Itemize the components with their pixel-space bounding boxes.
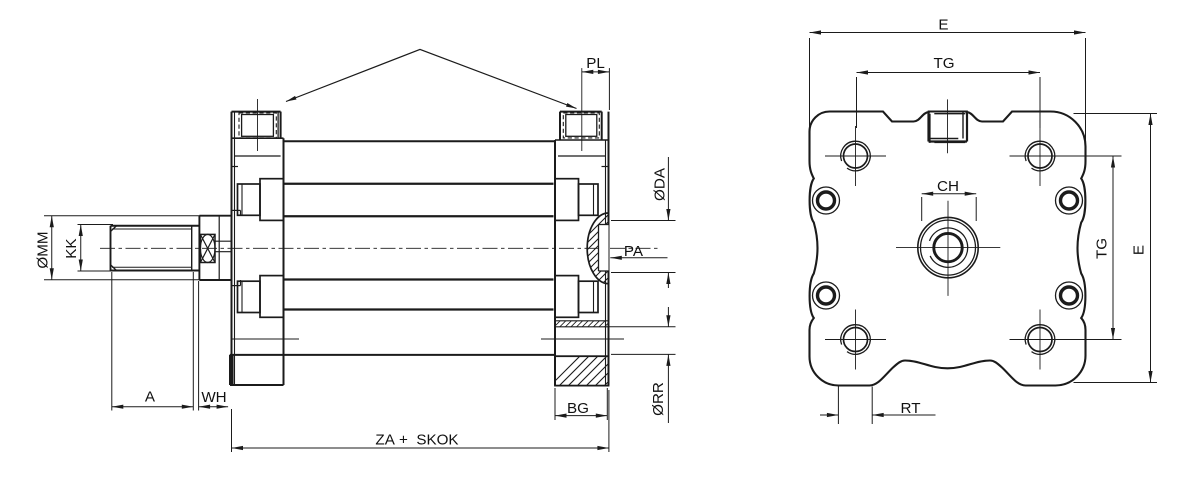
svg-text:KK: KK (63, 238, 80, 258)
svg-text:PL: PL (586, 55, 605, 72)
svg-text:RT: RT (901, 400, 921, 417)
svg-text:WH: WH (201, 389, 226, 406)
svg-text:E: E (938, 17, 948, 34)
svg-text:ØDA: ØDA (652, 167, 669, 201)
svg-text:PA: PA (624, 243, 644, 260)
svg-text:ØRR: ØRR (650, 382, 667, 416)
svg-text:TG: TG (933, 55, 954, 72)
svg-text:A: A (145, 389, 156, 406)
svg-text:CH: CH (937, 178, 959, 195)
svg-text:ØMM: ØMM (35, 231, 52, 268)
svg-text:ZA + SKOK: ZA + SKOK (375, 432, 458, 449)
svg-text:E: E (1131, 245, 1148, 255)
svg-text:BG: BG (567, 400, 589, 417)
svg-text:TG: TG (1094, 238, 1111, 259)
